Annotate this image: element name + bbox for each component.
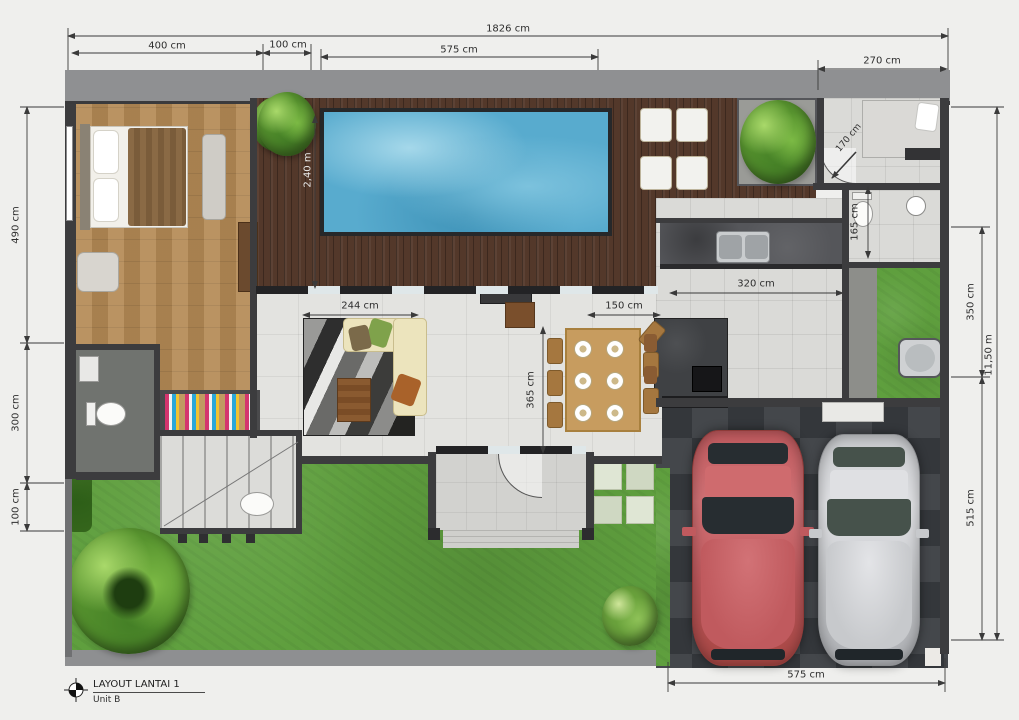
plan-unit: Unit B: [93, 695, 120, 705]
dim-label-575-bottom: 575 cm: [787, 670, 825, 681]
dimension-lines: [0, 0, 1019, 720]
floor-plan-canvas: 1826 cm 400 cm 100 cm 575 cm 270 cm 490 …: [0, 0, 1019, 720]
dim-label-100-top: 100 cm: [269, 40, 307, 51]
dim-label-300: 300 cm: [11, 394, 22, 432]
dim-label-515: 515 cm: [966, 489, 977, 527]
dim-label-400: 400 cm: [148, 41, 186, 52]
dim-label-320: 320 cm: [737, 279, 775, 290]
dim-label-150: 150 cm: [605, 301, 643, 312]
dim-label-total-width: 1826 cm: [486, 24, 530, 35]
dim-label-100-left: 100 cm: [11, 488, 22, 526]
title-divider: [93, 692, 205, 693]
dim-label-350: 350 cm: [966, 283, 977, 321]
dim-label-270: 270 cm: [863, 56, 901, 67]
dim-label-165: 165 cm: [850, 203, 861, 241]
plan-title: LAYOUT LANTAI 1: [93, 679, 180, 690]
dim-label-244: 244 cm: [341, 301, 379, 312]
dim-label-1150m: 11,50 m: [984, 334, 995, 376]
dim-label-575-top: 575 cm: [440, 45, 478, 56]
north-compass-icon: [64, 678, 88, 702]
dim-label-pool-240m: 2,40 m: [303, 152, 314, 187]
dim-label-365: 365 cm: [526, 371, 537, 409]
dim-label-490: 490 cm: [11, 206, 22, 244]
